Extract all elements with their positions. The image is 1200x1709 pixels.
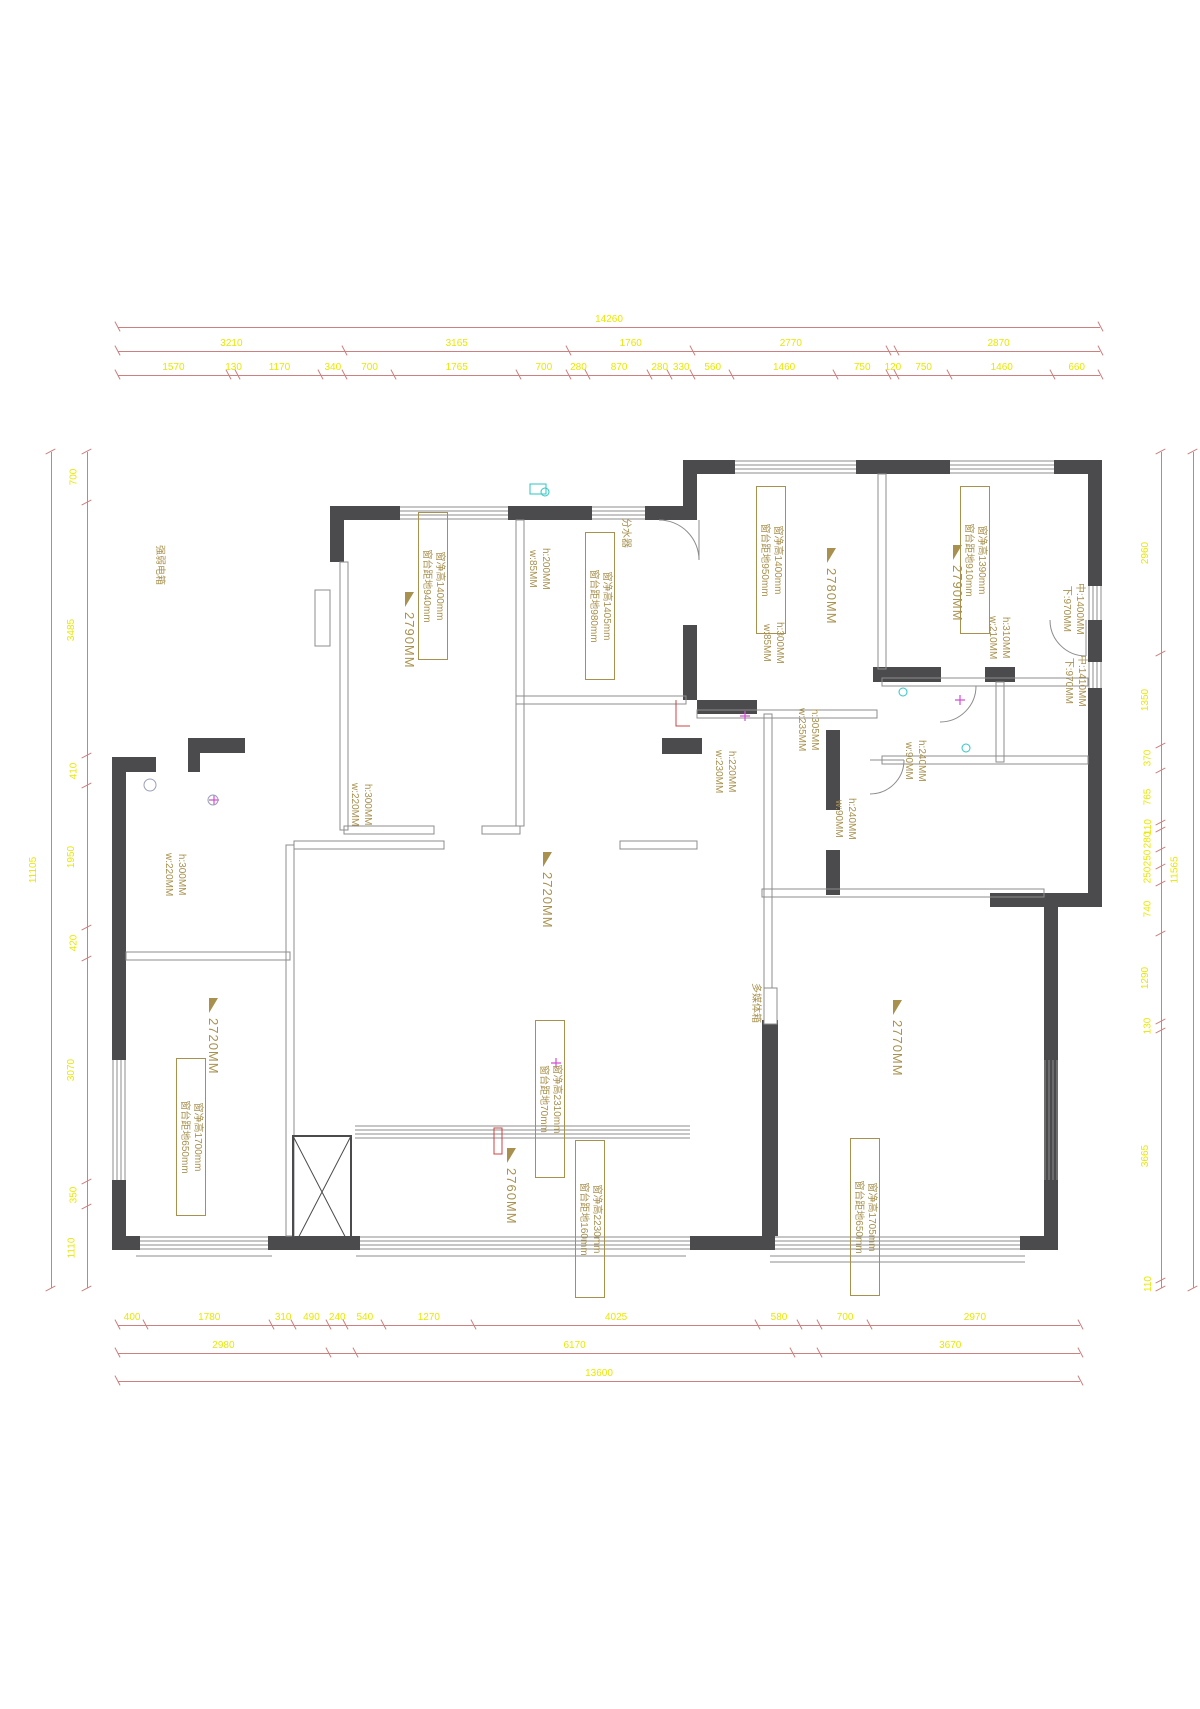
dim-label: 410	[70, 763, 80, 780]
electric-box-symbol	[315, 590, 330, 646]
dim-label: 2970	[964, 1313, 986, 1323]
magenta-mark-icon	[955, 695, 965, 705]
dim-label: 660	[1068, 363, 1085, 373]
note-line: h:300MM	[175, 853, 188, 896]
size-note: h:200MMw:85MM	[526, 548, 552, 590]
dim-label: 11105	[29, 857, 39, 883]
level-flag-icon	[209, 998, 218, 1013]
dim-left-inner: 7003485410195042030703501110	[72, 452, 88, 1288]
note-line: 窗净高2310mm	[550, 1024, 563, 1174]
note-line: w:220MM	[162, 853, 175, 896]
dim-segment: 700	[820, 1310, 870, 1326]
dim-label: 110	[1144, 1276, 1154, 1292]
dim-label: 560	[704, 363, 721, 373]
dim-segment: 6170	[356, 1338, 792, 1354]
note-line: h:240MM	[845, 798, 858, 840]
dim-label: 2870	[987, 339, 1009, 349]
dim-segment: 250	[1146, 850, 1162, 867]
dim-label: 2980	[212, 1341, 234, 1351]
dim-segment: 1460	[732, 360, 835, 376]
dim-label: 420	[70, 935, 80, 952]
note-line: 窗净高1700mm	[191, 1062, 204, 1212]
dim-left-outer: 11105	[36, 452, 52, 1288]
power-symbol	[494, 1128, 502, 1154]
note-line: 窗净高1405mm	[600, 536, 613, 676]
dim-segment: 11105	[36, 452, 52, 1288]
dim-segment: 280	[569, 360, 589, 376]
equipment-label: 分水器	[619, 518, 632, 548]
dim-label: 11565	[1170, 856, 1180, 883]
fixture-circle-icon	[144, 779, 156, 791]
dim-label: 1290	[1141, 967, 1151, 989]
dim-segment: 870	[588, 360, 649, 376]
dim-segment: 2960	[1146, 452, 1162, 654]
dim-bottom-row1: 4001780310490240540127040255807002970	[118, 1310, 1080, 1326]
dim-label: 2960	[1141, 542, 1151, 564]
dim-segment: 2870	[897, 336, 1100, 352]
ceiling-height-value: 2760MM	[505, 1168, 518, 1225]
dim-segment: 1760	[569, 336, 693, 352]
dim-label: 750	[854, 363, 871, 373]
dim-label: 3210	[220, 339, 242, 349]
dim-segment: 1270	[384, 1310, 474, 1326]
dim-segment: 350	[72, 1182, 88, 1207]
dim-label: 3665	[1141, 1145, 1151, 1167]
note-line: w:85MM	[760, 622, 773, 664]
size-note: h:300MMw:220MM	[348, 783, 374, 826]
ceiling-height-label: 2790MM	[951, 545, 964, 695]
dim-label: 580	[771, 1313, 788, 1323]
dim-segment: 13600	[118, 1366, 1080, 1382]
dim-label: 340	[325, 363, 342, 373]
dim-label: 765	[1144, 789, 1154, 806]
dim-segment: 540	[346, 1310, 384, 1326]
dim-segment: 14260	[118, 312, 1100, 328]
dim-label: 1460	[773, 363, 795, 373]
dim-label: 400	[124, 1313, 141, 1323]
note-line: w:90MM	[832, 798, 845, 840]
note-line: 窗净高2230mm	[590, 1144, 603, 1294]
ceiling-height-value: 2780MM	[825, 568, 838, 625]
dim-segment	[800, 1310, 821, 1326]
note-line: h:200MM	[539, 548, 552, 590]
dim-top-row3: 1570130117034070017657002808702803305601…	[118, 360, 1100, 376]
dim-segment: 1765	[394, 360, 519, 376]
ceiling-height-label: 2770MM	[891, 1000, 904, 1160]
cyan-fixture-icon	[962, 744, 970, 752]
size-note: 中:1400MM下:970MM	[1060, 583, 1086, 635]
dim-segment: 280	[650, 360, 670, 376]
dim-segment: 700	[345, 360, 394, 376]
note-line: h:220MM	[725, 750, 738, 793]
dim-segment: 410	[72, 756, 88, 786]
dim-segment: 660	[1053, 360, 1100, 376]
dim-segment: 11565	[1178, 452, 1194, 1288]
dim-segment: 750	[836, 360, 889, 376]
dim-bottom-row2: 298061703670	[118, 1338, 1080, 1354]
dim-segment: 1950	[72, 786, 88, 928]
dim-label: 13600	[585, 1369, 613, 1379]
dim-segment: 3670	[820, 1338, 1080, 1354]
note-line: 窗净高1705mm	[865, 1142, 878, 1292]
dim-label: 1350	[1141, 689, 1151, 711]
note-line: w:230MM	[712, 750, 725, 793]
ceiling-height-value: 2720MM	[207, 1018, 220, 1075]
dim-segment: 4025	[474, 1310, 759, 1326]
equipment-label: 多媒体箱	[749, 983, 762, 1023]
ceiling-height-label: 2790MM	[403, 592, 416, 757]
dim-label: 740	[1144, 900, 1154, 917]
ceiling-height-label: 2720MM	[207, 998, 220, 1163]
dim-label: 700	[837, 1313, 854, 1323]
dim-segment: 700	[519, 360, 568, 376]
note-line: 下:970MM	[1060, 583, 1073, 635]
level-flag-icon	[953, 545, 962, 560]
dim-segment: 420	[72, 928, 88, 959]
dim-label: 350	[70, 1186, 80, 1203]
note-line: 窗台距地950mm	[758, 490, 771, 630]
size-note: h:305MMw:235MM	[795, 708, 821, 751]
dim-segment: 750	[897, 360, 950, 376]
dim-label: 1170	[269, 363, 291, 373]
dim-label: 310	[275, 1313, 292, 1323]
level-flag-icon	[507, 1148, 516, 1163]
note-line: 窗台距地160mm	[577, 1144, 590, 1294]
dim-segment	[329, 1338, 357, 1354]
note-line: w:235MM	[795, 708, 808, 751]
dim-segment: 400	[118, 1310, 146, 1326]
dim-label: 4025	[605, 1313, 627, 1323]
note-line: 窗台距地980mm	[587, 536, 600, 676]
window-note: 窗净高1405mm窗台距地980mm	[585, 532, 615, 680]
ceiling-height-value: 2770MM	[891, 1020, 904, 1077]
dim-segment: 110	[1146, 1281, 1162, 1289]
dim-segment: 1780	[146, 1310, 272, 1326]
dim-segment: 1460	[950, 360, 1053, 376]
dim-label: 700	[361, 363, 378, 373]
dim-segment: 490	[294, 1310, 329, 1326]
dim-segment: 2970	[870, 1310, 1080, 1326]
dim-segment: 2980	[118, 1338, 329, 1354]
dim-label: 14260	[595, 315, 623, 325]
cyan-fixture-icon	[541, 488, 549, 496]
dim-label: 370	[1144, 750, 1154, 767]
dim-top-overall: 14260	[118, 312, 1100, 328]
dim-segment: 280	[1146, 830, 1162, 849]
dim-label: 1950	[67, 846, 77, 868]
elevator-shaft	[293, 1136, 351, 1248]
dim-segment: 3210	[118, 336, 345, 352]
note-line: w:210MM	[986, 616, 999, 659]
note-line: w:90MM	[902, 740, 915, 782]
window-note: 窗净高2310mm窗台距地70mm	[535, 1020, 565, 1178]
dim-label: 700	[70, 469, 80, 486]
dim-segment: 580	[758, 1310, 799, 1326]
dim-label: 1270	[418, 1313, 440, 1323]
dim-label: 250	[1144, 867, 1154, 884]
note-line: 窗净高1400mm	[771, 490, 784, 630]
dim-segment: 1350	[1146, 654, 1162, 746]
note-line: 窗台距地940mm	[420, 516, 433, 656]
dim-label: 1110	[68, 1237, 78, 1258]
size-note: h:310MMw:210MM	[986, 616, 1012, 659]
dim-label: 540	[357, 1313, 374, 1323]
dim-label: 280	[651, 363, 668, 373]
dim-segment: 240	[329, 1310, 346, 1326]
ceiling-height-value: 2790MM	[951, 565, 964, 622]
dim-label: 250	[1144, 850, 1154, 867]
dim-label: 2770	[780, 339, 802, 349]
dim-segment	[793, 1338, 821, 1354]
dim-label: 1780	[198, 1313, 220, 1323]
dim-segment: 250	[1146, 867, 1162, 884]
size-note: h:240MMw:90MM	[902, 740, 928, 782]
dim-label: 6170	[563, 1341, 585, 1351]
window-note: 窗净高1400mm窗台距地950mm	[756, 486, 786, 634]
dim-label: 280	[570, 363, 587, 373]
dim-label: 870	[611, 363, 628, 373]
level-flag-icon	[827, 548, 836, 563]
size-note: 中:1410MM下:970MM	[1062, 655, 1088, 707]
window-note: 窗净高1705mm窗台距地650mm	[850, 1138, 880, 1296]
dim-segment: 560	[693, 360, 733, 376]
note-line: 窗台距地70mm	[537, 1024, 550, 1174]
note-line: 窗台距地650mm	[178, 1062, 191, 1212]
dim-segment: 3665	[1146, 1031, 1162, 1281]
window-note: 窗净高1400mm窗台距地940mm	[418, 512, 448, 660]
dim-segment: 330	[670, 360, 693, 376]
dim-label: 3165	[446, 339, 468, 349]
dim-label: 490	[303, 1313, 320, 1323]
dim-segment: 700	[72, 452, 88, 503]
dim-label: 3485	[67, 619, 77, 641]
floor-plan-page: 1426032103165176027702870157013011703407…	[0, 0, 1200, 1709]
note-line: w:85MM	[526, 548, 539, 590]
window-note: 窗净高1700mm窗台距地650mm	[176, 1058, 206, 1216]
dim-segment: 340	[321, 360, 345, 376]
dim-segment: 1110	[72, 1207, 88, 1288]
window-note: 窗净高2230mm窗台距地160mm	[575, 1140, 605, 1298]
dim-segment: 1290	[1146, 934, 1162, 1022]
ceiling-height-value: 2720MM	[541, 872, 554, 929]
note-line: 窗台距地650mm	[852, 1142, 865, 1292]
equipment-label: 强弱电箱	[153, 545, 166, 585]
dim-label: 3070	[67, 1059, 77, 1081]
dim-segment: 2770	[693, 336, 889, 352]
size-note: h:300MMw:220MM	[162, 853, 188, 896]
note-line: 下:970MM	[1062, 655, 1075, 707]
ceiling-height-label: 2780MM	[825, 548, 838, 698]
dim-segment: 310	[272, 1310, 294, 1326]
dim-segment: 3165	[345, 336, 569, 352]
note-line: 中:1410MM	[1075, 655, 1088, 707]
dim-top-row2: 32103165176027702870	[118, 336, 1100, 352]
dim-label: 700	[535, 363, 552, 373]
note-line: 窗净高1400mm	[433, 516, 446, 656]
dim-label: 1760	[620, 339, 642, 349]
dim-segment: 370	[1146, 746, 1162, 771]
size-note: h:300MMw:85MM	[760, 622, 786, 664]
note-line: 窗净高1390mm	[975, 490, 988, 630]
note-line: h:305MM	[808, 708, 821, 751]
size-note: h:240MMw:90MM	[832, 798, 858, 840]
dim-segment: 765	[1146, 771, 1162, 823]
ceiling-height-value: 2790MM	[403, 612, 416, 669]
dim-segment: 1170	[238, 360, 321, 376]
ceiling-height-label: 2760MM	[505, 1148, 518, 1298]
dim-right-inner: 2960135037076511028025025074012901303665…	[1146, 452, 1162, 1288]
note-line: h:300MM	[361, 783, 374, 826]
dim-label: 3670	[939, 1341, 961, 1351]
level-flag-icon	[543, 852, 552, 867]
dim-label: 330	[673, 363, 690, 373]
note-line: w:220MM	[348, 783, 361, 826]
dim-label: 1460	[991, 363, 1013, 373]
note-line: h:240MM	[915, 740, 928, 782]
dim-label: 1570	[162, 363, 184, 373]
dim-bottom-row3: 13600	[118, 1366, 1080, 1382]
cyan-fixture-icon	[899, 688, 907, 696]
ceiling-height-label: 2720MM	[541, 852, 554, 1017]
size-note: h:220MMw:230MM	[712, 750, 738, 793]
level-flag-icon	[893, 1000, 902, 1015]
level-flag-icon	[405, 592, 414, 607]
manifold-symbol	[530, 484, 546, 494]
dim-segment: 3485	[72, 503, 88, 756]
note-line: h:310MM	[999, 616, 1012, 659]
dim-segment: 1570	[118, 360, 229, 376]
dim-label: 280	[1144, 832, 1154, 849]
dim-segment: 3070	[72, 959, 88, 1182]
dim-right-outer: 11565	[1178, 452, 1194, 1288]
multimedia-box-symbol	[764, 988, 777, 1024]
dim-label: 750	[915, 363, 932, 373]
dim-label: 1765	[446, 363, 468, 373]
note-line: 中:1400MM	[1073, 583, 1086, 635]
dim-segment: 740	[1146, 884, 1162, 934]
note-line: h:300MM	[773, 622, 786, 664]
